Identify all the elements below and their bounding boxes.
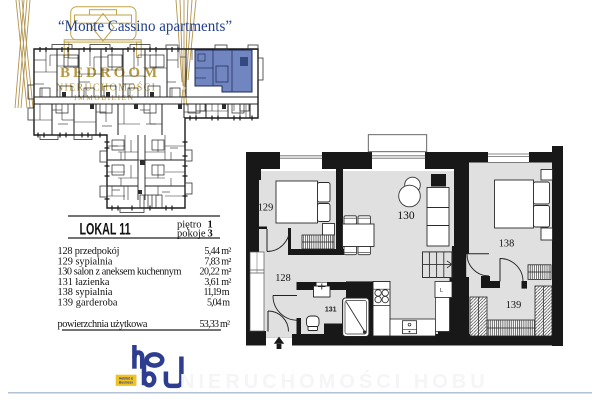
svg-text:LOKAL 11: LOKAL 11: [79, 221, 130, 239]
svg-text:139 garderoba: 139 garderoba: [58, 298, 118, 309]
svg-text:NIERUCHOMOŚCI: NIERUCHOMOŚCI: [56, 82, 156, 94]
svg-text:53,33 m²: 53,33 m²: [200, 319, 231, 330]
svg-text:131: 131: [325, 307, 337, 314]
svg-text:138: 138: [499, 239, 514, 250]
svg-text:powierzchnia użytkowa: powierzchnia użytkowa: [58, 319, 148, 330]
svg-text:L: L: [440, 288, 443, 294]
svg-text:130: 130: [397, 210, 415, 222]
svg-text:pokoje: pokoje: [177, 229, 206, 240]
svg-text:“Monte Cassino apartments”: “Monte Cassino apartments”: [58, 18, 232, 35]
svg-text:5,04 m: 5,04 m: [207, 298, 230, 309]
svg-text:128: 128: [275, 273, 290, 284]
svg-text:NIERUCHOMOŚCI HOBU: NIERUCHOMOŚCI HOBU: [180, 369, 489, 393]
svg-text:129: 129: [258, 203, 273, 214]
svg-text:139: 139: [506, 300, 521, 311]
svg-text:Business: Business: [119, 381, 133, 385]
svg-text:3: 3: [208, 229, 213, 240]
